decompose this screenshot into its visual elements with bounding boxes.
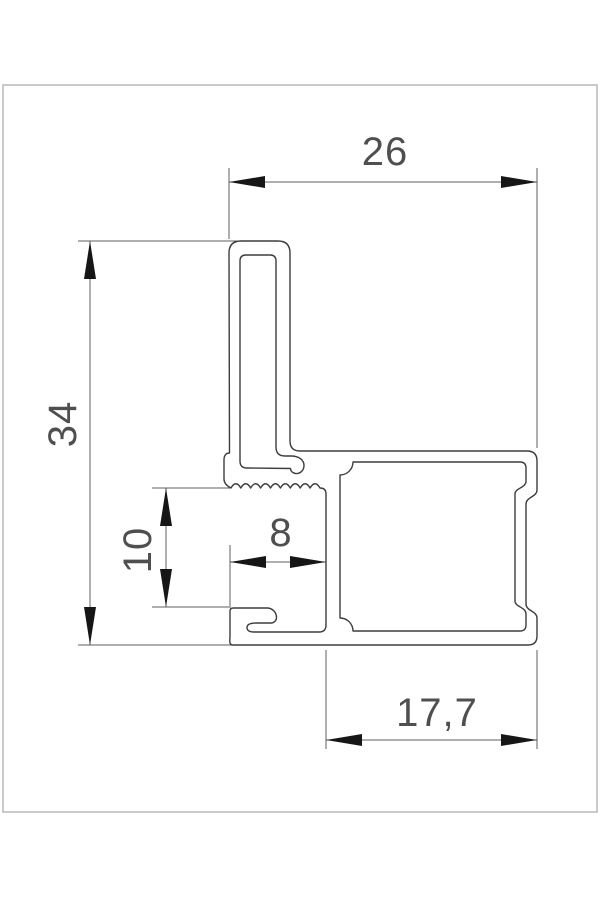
dimension-label-17-7: 17,7 [396, 691, 478, 735]
profile-tube-slot [240, 255, 304, 474]
profile-body-cavity [340, 462, 526, 631]
technical-drawing-svg: 26 34 10 8 17,7 [0, 0, 600, 900]
dimension-bottom-width: 17,7 [326, 650, 537, 749]
arrowhead-right-icon [290, 556, 326, 568]
arrowhead-right-icon [501, 734, 537, 746]
arrowhead-down-icon [160, 569, 172, 607]
dimension-channel-height: 10 [116, 488, 231, 607]
dimension-label-26: 26 [362, 130, 409, 174]
profile-cross-section [224, 241, 537, 645]
arrowhead-left-icon [229, 176, 265, 188]
dimension-label-8: 8 [269, 511, 292, 555]
dimension-label-10: 10 [116, 527, 160, 574]
drawing-canvas: 26 34 10 8 17,7 [0, 0, 600, 900]
dimension-channel-depth: 8 [230, 511, 326, 606]
dimension-left-height: 34 [41, 241, 327, 645]
profile-outer-contour [224, 241, 537, 645]
arrowhead-up-icon [160, 488, 172, 526]
arrowhead-left-icon [230, 556, 266, 568]
arrowhead-right-icon [501, 176, 537, 188]
dimension-label-34: 34 [41, 401, 85, 448]
arrowhead-left-icon [326, 734, 362, 746]
arrowhead-down-icon [84, 607, 96, 645]
dimension-top-width: 26 [229, 130, 537, 448]
arrowhead-up-icon [84, 241, 96, 279]
drawing-frame [3, 85, 597, 812]
